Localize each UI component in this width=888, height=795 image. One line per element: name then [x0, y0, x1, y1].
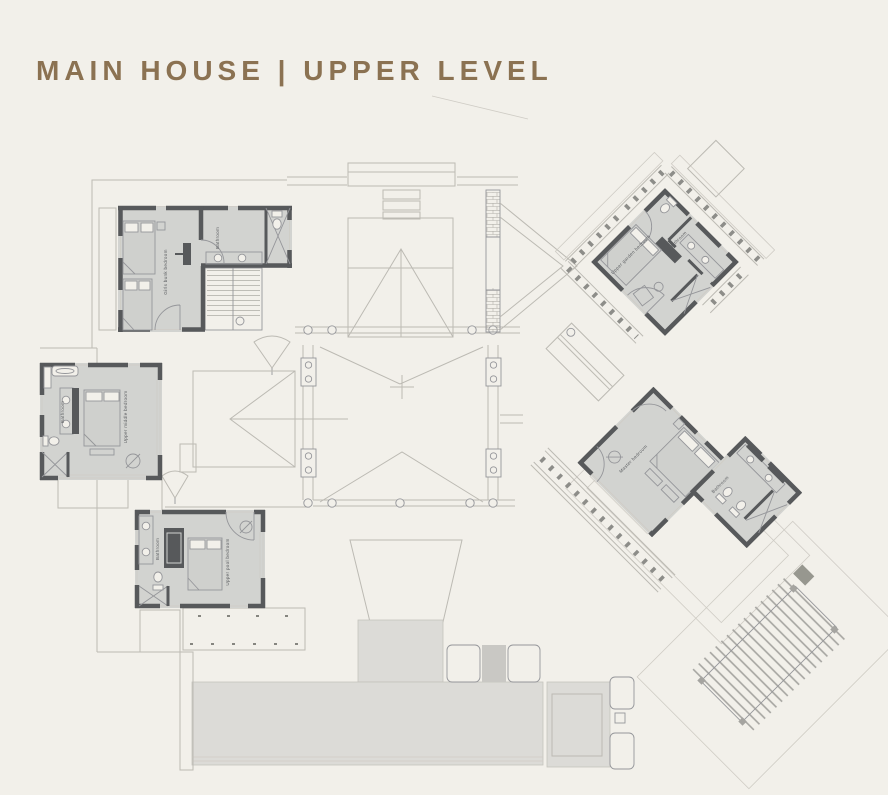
deck-planted-bottom	[140, 608, 305, 652]
planter	[610, 677, 634, 709]
floor-plan-drawing: Girls bunk bedroom Bathroom	[0, 0, 888, 795]
garden-suite: Upper garden bedroom Bathroom	[550, 116, 800, 366]
room-label-upper-middle-bedroom: Upper middle bedroom	[123, 391, 128, 444]
terrace-stair	[180, 652, 193, 770]
girls-suite: Girls bunk bedroom Bathroom	[118, 206, 292, 332]
terrace-column	[482, 645, 506, 682]
columns-row-south	[301, 449, 501, 507]
pergola-slats	[692, 577, 846, 731]
room-label-bathroom: Bathroom	[155, 538, 160, 560]
master-bedroom: Master bedroom	[577, 387, 728, 538]
pool-suite: Bathroom Upper pool bedroom	[135, 510, 265, 608]
pergola	[637, 521, 888, 788]
room-label-bathroom: Bathroom	[60, 401, 65, 423]
bed-middle	[84, 390, 120, 455]
middle-suite: Bathroom Upper middle bedroom	[40, 363, 162, 480]
tree-plantings	[162, 336, 290, 504]
planter	[610, 733, 634, 769]
room-label-upper-pool-bedroom: Upper pool bedroom	[225, 538, 230, 585]
garden-door-block	[793, 564, 814, 585]
girls-stair	[205, 268, 262, 330]
deck-checker-left	[58, 478, 128, 508]
bed-pool	[188, 538, 222, 590]
garden-stair	[546, 323, 624, 401]
floor-plan-page: MAIN HOUSE | UPPER LEVEL	[0, 0, 888, 795]
stone-wall	[486, 190, 500, 332]
room-label-bathroom: Bathroom	[215, 227, 220, 249]
planter	[508, 645, 540, 682]
room-label-girls-bunk-bedroom: Girls bunk bedroom	[163, 249, 168, 295]
planter	[447, 645, 480, 682]
